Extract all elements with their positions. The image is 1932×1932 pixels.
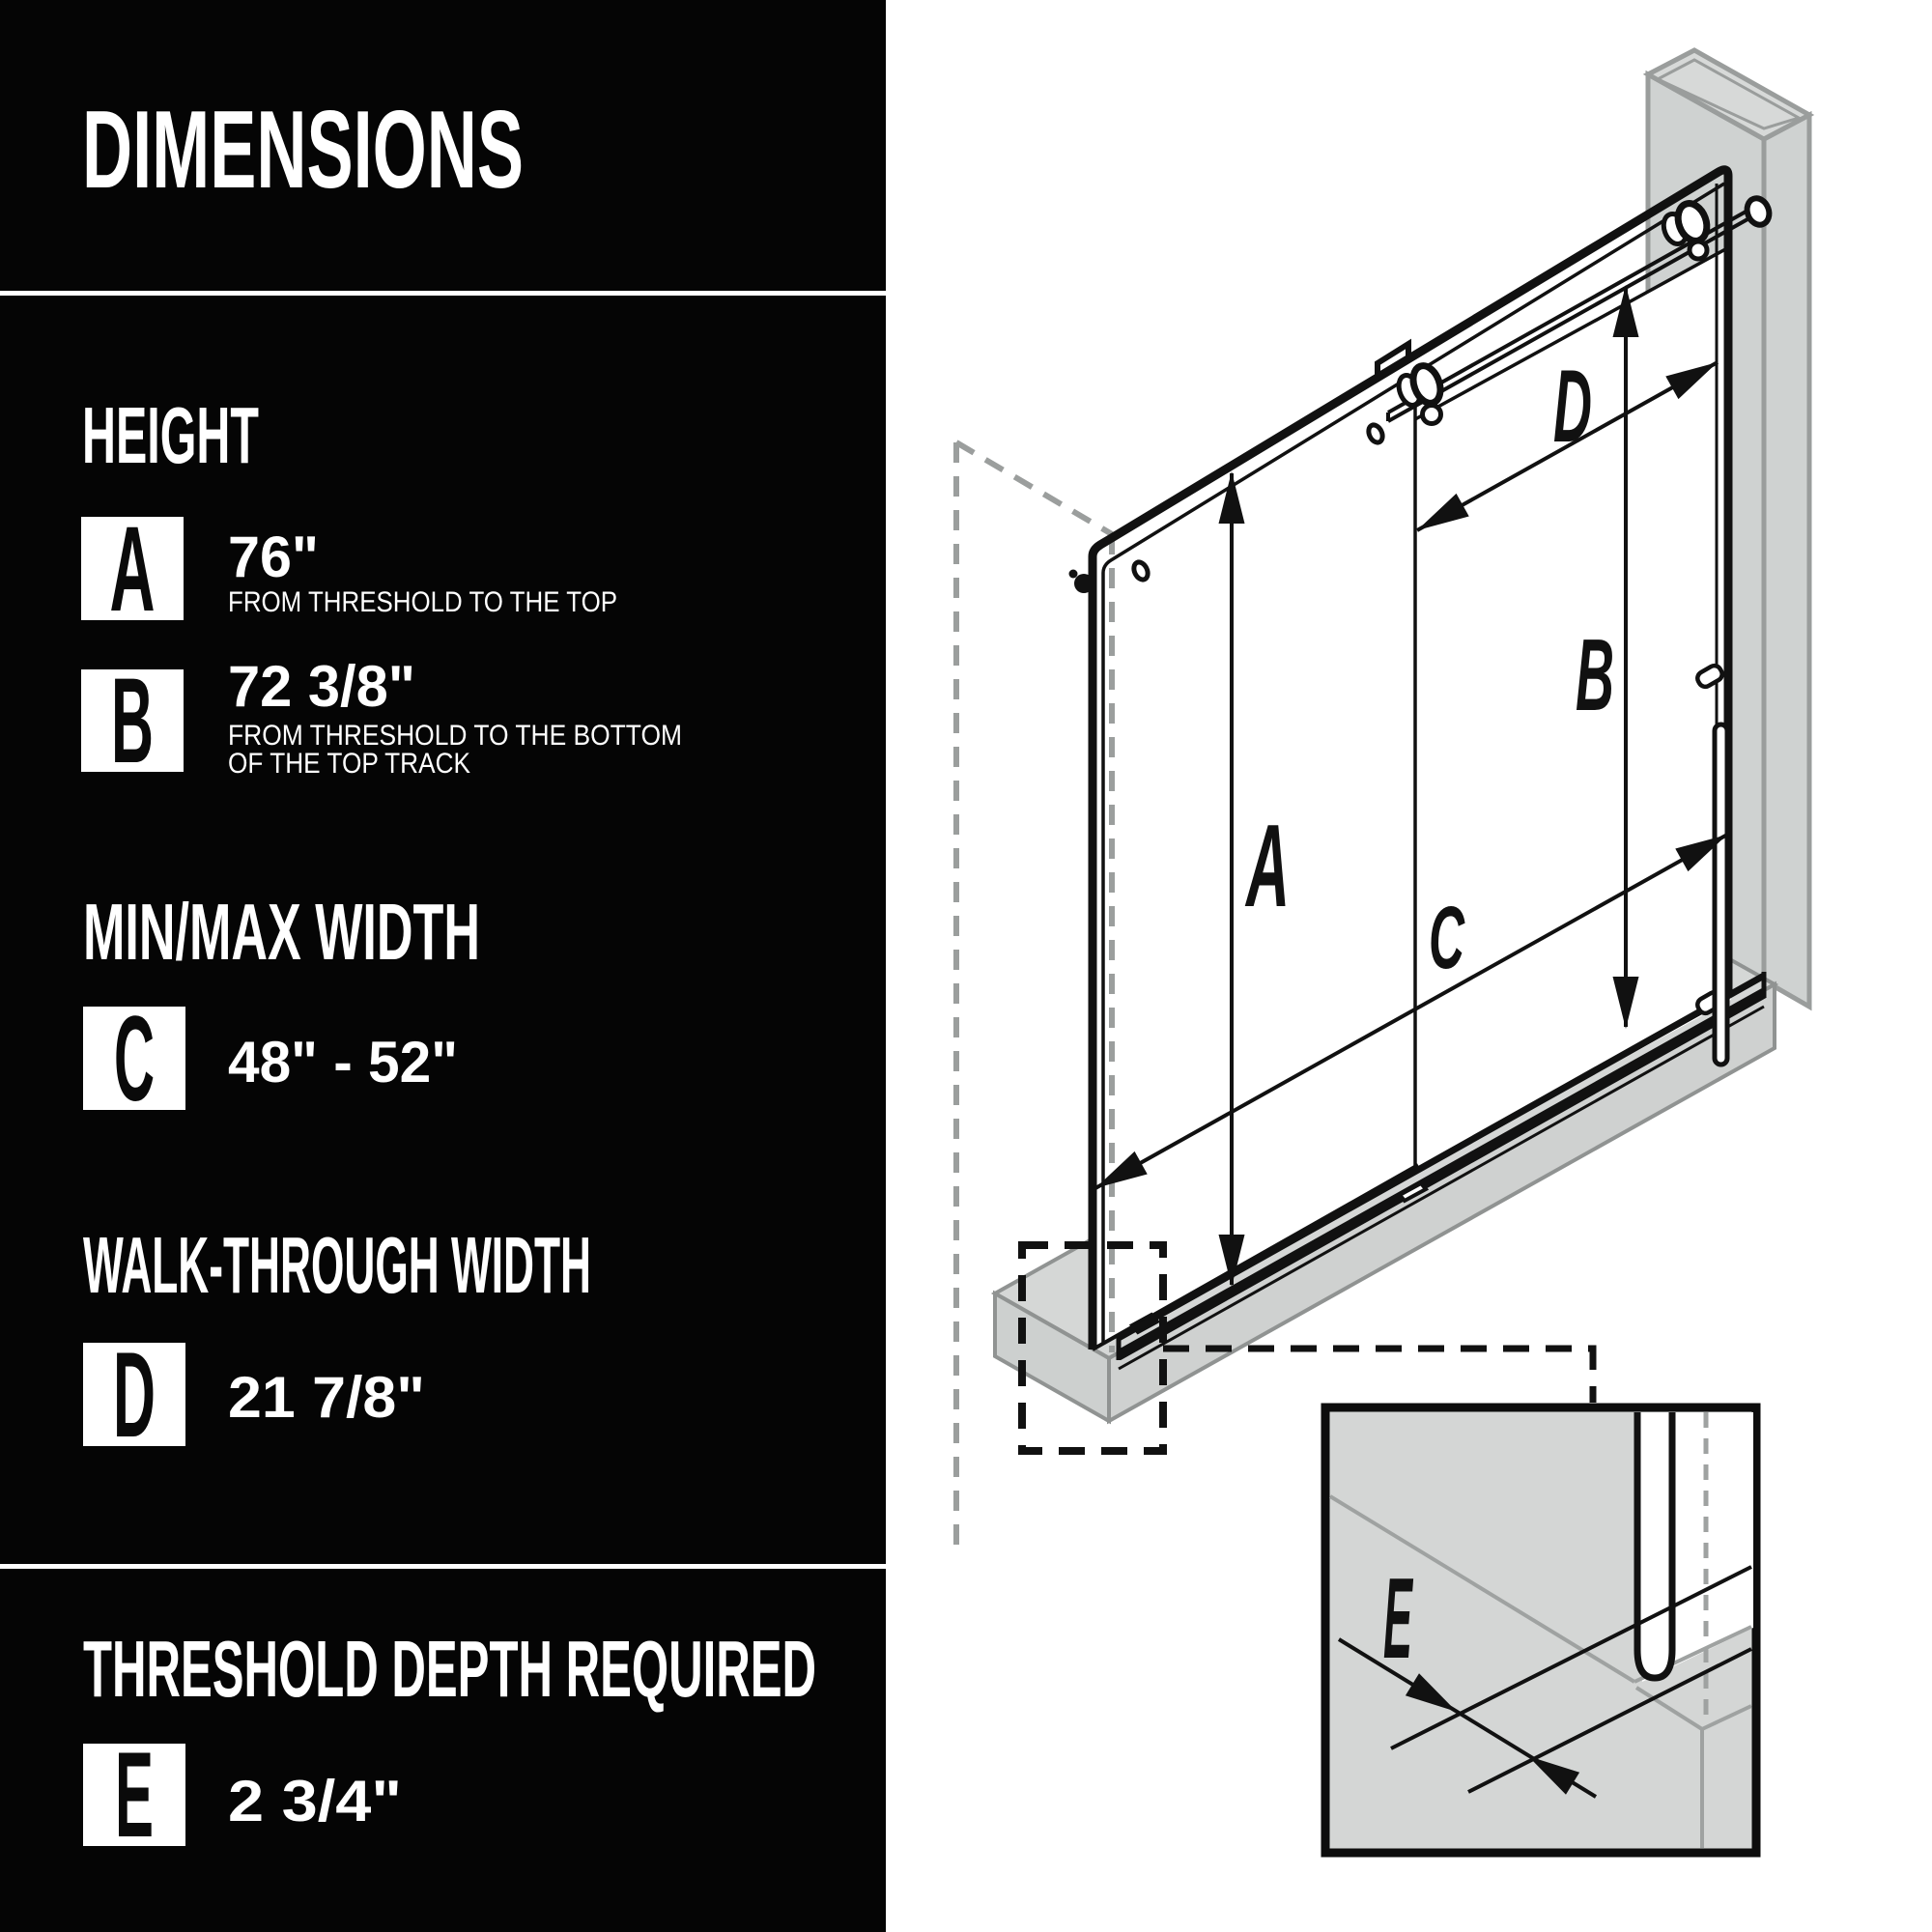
svg-text:48" - 52": 48" - 52" — [228, 1030, 458, 1094]
svg-text:DIMENSIONS: DIMENSIONS — [82, 89, 524, 212]
svg-text:E: E — [1383, 1554, 1413, 1683]
svg-text:A: A — [110, 502, 156, 637]
svg-text:D: D — [1553, 348, 1592, 464]
svg-text:OF THE TOP TRACK: OF THE TOP TRACK — [228, 748, 470, 780]
svg-text:WALK-THROUGH WIDTH: WALK-THROUGH WIDTH — [83, 1220, 591, 1310]
svg-text:E: E — [115, 1728, 154, 1862]
svg-text:C: C — [114, 992, 155, 1126]
svg-text:72 3/8": 72 3/8" — [228, 654, 415, 719]
svg-text:MIN/MAX WIDTH: MIN/MAX WIDTH — [83, 887, 480, 977]
svg-text:2 3/4": 2 3/4" — [228, 1769, 402, 1833]
svg-text:HEIGHT: HEIGHT — [82, 390, 259, 480]
svg-text:THRESHOLD DEPTH REQUIRED: THRESHOLD DEPTH REQUIRED — [83, 1624, 816, 1714]
svg-text:B: B — [111, 654, 154, 788]
svg-text:A: A — [1244, 800, 1290, 931]
svg-text:C: C — [1429, 889, 1465, 987]
svg-text:B: B — [1576, 618, 1614, 732]
svg-text:D: D — [113, 1328, 156, 1463]
svg-text:21 7/8": 21 7/8" — [228, 1365, 425, 1430]
svg-text:76": 76" — [228, 525, 319, 589]
svg-text:FROM THRESHOLD TO THE TOP: FROM THRESHOLD TO THE TOP — [228, 586, 617, 618]
